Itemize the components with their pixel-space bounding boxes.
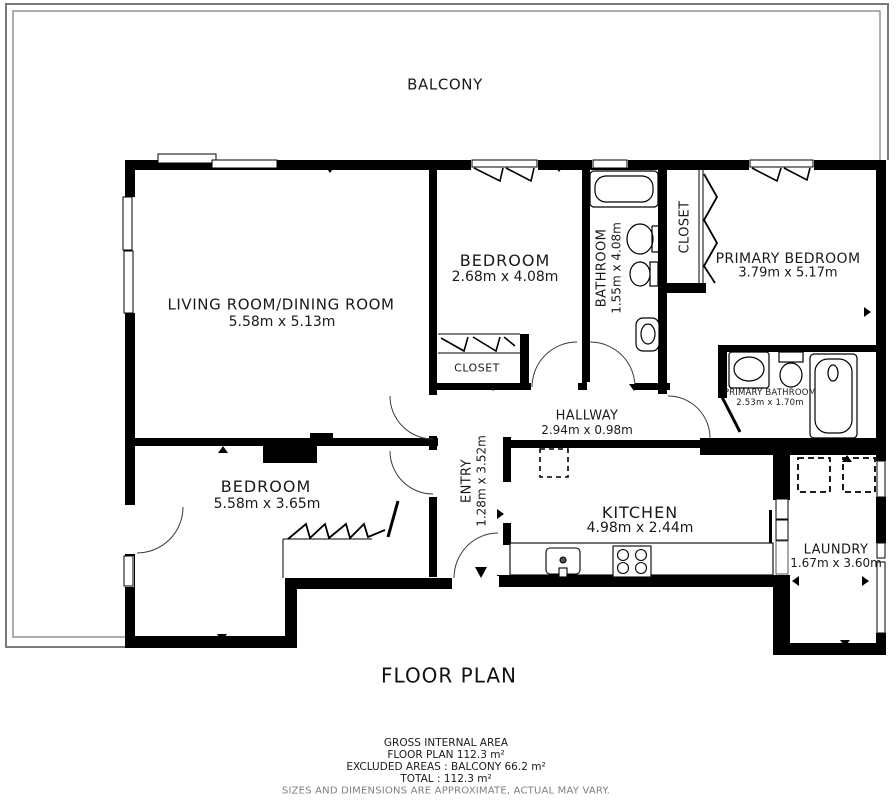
dryer-dashed-icon: [843, 458, 875, 492]
fridge-dashed-icon: [540, 449, 568, 477]
bathroom-label: BATHROOM: [596, 229, 611, 307]
kitchen-sink-icon: [546, 548, 580, 577]
left-window-2-icon: [124, 251, 133, 313]
living-entry-door-arc: [390, 396, 433, 439]
living-room-label: LIVING ROOM/DINING ROOM: [167, 296, 394, 313]
plan-title: FLOOR PLAN: [381, 665, 517, 688]
bidet-icon: [636, 318, 659, 351]
bedroom-bottom-label: BEDROOM: [221, 478, 312, 496]
primary-window-icon: [750, 160, 813, 167]
closet-nook-door-leaf: [388, 501, 398, 537]
footer-gross-area: GROSS INTERNAL AREA: [384, 737, 508, 749]
bathroom-window-icon: [593, 160, 627, 168]
primary-door-arc: [668, 396, 710, 438]
entry-label: ENTRY: [461, 459, 476, 503]
closet-primary-icon: [699, 168, 717, 283]
entrance-door-arc: [454, 533, 498, 578]
bedroom-top-dims: 2.68m x 4.08m: [452, 269, 559, 285]
living-room-dims: 5.58m x 5.13m: [229, 314, 336, 330]
footer-total-area: TOTAL : 112.3 m²: [400, 773, 491, 785]
primary-bathroom-dims: 2.53m x 1.70m: [736, 399, 803, 409]
closet-small-label: CLOSET: [454, 363, 500, 376]
floorplan-page: BALCONY LIVING ROOM/DINING ROOM 5.58m x …: [0, 0, 896, 800]
laundry-window-1-icon: [877, 461, 885, 497]
closet-small-icon: [438, 334, 520, 353]
laundry-window-3-icon: [877, 562, 885, 633]
bathroom-door-arc: [590, 342, 635, 387]
balcony-door-arc: [137, 507, 183, 553]
balcony-label: BALCONY: [407, 76, 483, 93]
entry-label-group: ENTRY 1.28m x 3.52m: [461, 435, 490, 527]
bathroom-label-group: BATHROOM 1.55m x 4.08m: [596, 222, 625, 314]
primary-bedroom-dims: 3.79m x 5.17m: [738, 267, 837, 282]
bathtub-icon: [590, 171, 658, 207]
washer-dashed-icon: [798, 458, 830, 492]
sink-icon: [627, 224, 658, 254]
primary-bathtub-icon: [810, 354, 857, 438]
footer-disclaimer: SIZES AND DIMENSIONS ARE APPROXIMATE, AC…: [282, 785, 610, 797]
footer-excluded-area: EXCLUDED AREAS : BALCONY 66.2 m²: [346, 761, 545, 773]
entry-dims: 1.28m x 3.52m: [476, 435, 490, 527]
closet-primary-label: CLOSET: [679, 201, 694, 254]
closet-primary-label-group: CLOSET: [679, 201, 694, 254]
primary-toilet-icon: [779, 352, 803, 387]
primary-sink-icon: [729, 352, 769, 388]
laundry-dims: 1.67m x 3.60m: [790, 557, 882, 571]
stove-icon: [613, 546, 651, 577]
bedroom-door-arc: [532, 342, 577, 387]
left-window-3-icon: [124, 556, 133, 586]
bedroom-top-label: BEDROOM: [460, 252, 551, 270]
closet-nook-icon: [283, 524, 385, 578]
footer-floorplan-area: FLOOR PLAN 112.3 m²: [387, 749, 504, 761]
bedroom-entry-door-arc: [390, 451, 433, 494]
laundry-sliding-door-icon: [776, 499, 788, 574]
bedroom-window-icon: [472, 160, 537, 167]
toilet-icon: [630, 262, 658, 286]
kitchen-dims: 4.98m x 2.44m: [587, 520, 694, 536]
left-window-1-icon: [123, 197, 132, 250]
hallway-dims: 2.94m x 0.98m: [541, 424, 633, 438]
bedroom-bottom-dims: 5.58m x 3.65m: [214, 496, 321, 512]
bathroom-dims: 1.55m x 4.08m: [611, 222, 625, 314]
